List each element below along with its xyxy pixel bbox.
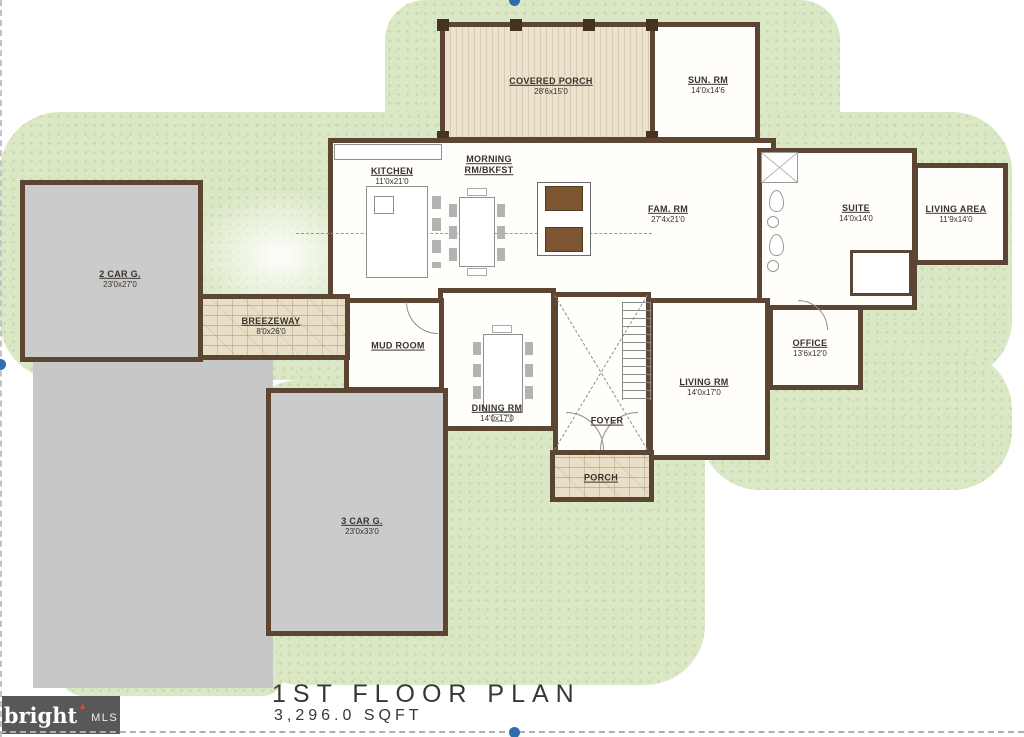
room-label-garage-2car: 2 CAR G. 23'0x27'0 xyxy=(99,269,140,289)
room-label-dining-rm: DINING RM 14'0x17'0 xyxy=(472,403,523,423)
room-dims: 14'0x17'0 xyxy=(480,414,514,424)
room-name: FAM. RM xyxy=(648,204,688,215)
toilet xyxy=(769,234,784,256)
morning-table xyxy=(459,197,495,267)
room-name: SUITE xyxy=(842,203,870,214)
room-label-kitchen: KITCHEN 11'0x21'0 xyxy=(371,166,413,186)
fireplace-box xyxy=(545,186,583,211)
room-name: OFFICE xyxy=(793,338,828,349)
kitchen-counter xyxy=(334,144,442,160)
selection-handle-left[interactable] xyxy=(0,359,6,370)
brightmls-logo-brand: bright xyxy=(4,705,77,726)
plan-sqft: 3,296.0 SQFT xyxy=(274,707,423,725)
suite-closet xyxy=(850,250,912,296)
room-label-foyer: FOYER xyxy=(591,416,624,427)
room-name: LIVING RM xyxy=(679,377,728,388)
room-dims: 14'0x14'0 xyxy=(839,214,873,224)
island-stools xyxy=(432,196,441,268)
room-label-living-rm: LIVING RM 14'0x17'0 xyxy=(679,377,728,397)
room-name: FOYER xyxy=(591,416,624,427)
room-dims: 13'6x12'0 xyxy=(793,349,827,359)
morning-chair xyxy=(467,188,487,196)
floor-plan-canvas: COVERED PORCH 28'6x15'0 SUN. RM 14'0x14'… xyxy=(0,0,1024,737)
driveway xyxy=(33,358,273,688)
morning-chairs xyxy=(449,204,457,262)
porch-post xyxy=(437,19,449,31)
porch-post xyxy=(583,19,595,31)
staircase xyxy=(622,302,651,400)
room-name: BREEZEWAY xyxy=(242,316,301,327)
room-dims: 14'0x14'6 xyxy=(691,86,725,96)
room-name: PORCH xyxy=(584,473,618,484)
room-name: 2 CAR G. xyxy=(99,269,140,280)
room-name: MUD ROOM xyxy=(371,341,424,352)
room-name: LIVING AREA xyxy=(926,204,987,215)
brightmls-logo-suffix: MLS xyxy=(91,712,118,724)
room-name: MORNING RM/BKFST xyxy=(457,154,521,176)
room-name: COVERED PORCH xyxy=(509,76,592,87)
plan-title: 1ST FLOOR PLAN xyxy=(272,680,581,709)
dining-chairs xyxy=(525,342,533,404)
sink-basin xyxy=(767,216,779,228)
room-label-office: OFFICE 13'6x12'0 xyxy=(793,338,828,358)
room-dims: 11'9x14'0 xyxy=(939,215,972,225)
dining-chair xyxy=(492,325,512,333)
room-name: SUN. RM xyxy=(688,75,728,86)
room-dims: 11'0x21'0 xyxy=(375,177,408,187)
room-name: DINING RM xyxy=(472,403,523,414)
room-dims: 27'4x21'0 xyxy=(651,215,685,225)
double-fireplace xyxy=(537,182,591,256)
room-label-porch: PORCH xyxy=(584,473,618,484)
room-label-covered-porch: COVERED PORCH 28'6x15'0 xyxy=(509,76,592,96)
room-label-fam-rm: FAM. RM 27'4x21'0 xyxy=(648,204,688,224)
room-dims: 14'0x17'0 xyxy=(687,388,721,398)
sink-basin xyxy=(767,260,779,272)
selection-handle-bottom[interactable] xyxy=(509,727,520,737)
room-name: KITCHEN xyxy=(371,166,413,177)
dining-table xyxy=(483,334,523,412)
shower xyxy=(761,152,798,183)
island-sink xyxy=(374,196,394,214)
room-label-garage-3car: 3 CAR G. 23'0x33'0 xyxy=(341,516,382,536)
porch-post xyxy=(646,19,658,31)
morning-chairs xyxy=(497,204,505,262)
dining-chairs xyxy=(473,342,481,404)
room-dims: 23'0x33'0 xyxy=(345,527,379,537)
garage-3car-block xyxy=(266,388,448,636)
room-label-living-area: LIVING AREA 11'9x14'0 xyxy=(926,204,987,224)
room-label-sun-rm: SUN. RM 14'0x14'6 xyxy=(688,75,728,95)
morning-chair xyxy=(467,268,487,276)
room-label-breezeway: BREEZEWAY 8'0x26'0 xyxy=(242,316,301,336)
room-dims: 28'6x15'0 xyxy=(534,87,568,97)
room-label-suite: SUITE 14'0x14'0 xyxy=(839,203,873,223)
fireplace-box xyxy=(545,227,583,252)
room-label-morning-rm: MORNING RM/BKFST xyxy=(457,154,521,176)
logo-arrow-icon: ▲ xyxy=(78,702,87,711)
room-dims: 8'0x26'0 xyxy=(256,327,285,337)
toilet xyxy=(769,190,784,212)
room-name: 3 CAR G. xyxy=(341,516,382,527)
brightmls-logo: bright ▲ MLS xyxy=(2,696,120,734)
room-label-mud-room: MUD ROOM xyxy=(371,341,424,352)
porch-post xyxy=(510,19,522,31)
room-dims: 23'0x27'0 xyxy=(103,280,137,290)
